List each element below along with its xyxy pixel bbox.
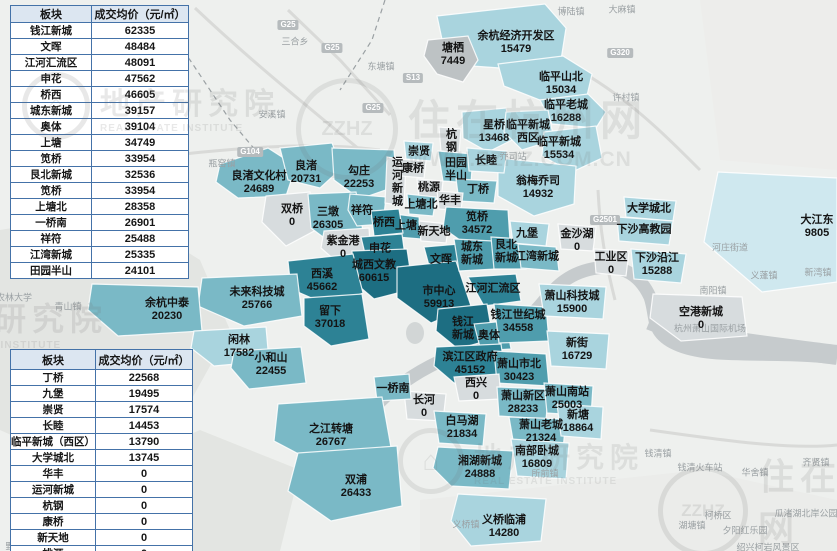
region-price: 15288 <box>635 265 679 278</box>
map-label-zijingang: 紫金港0 <box>327 235 360 261</box>
region-price: 16729 <box>562 350 593 363</box>
map-label-daxuechengbei: 大学城北 <box>627 203 671 216</box>
map-label-gongyequ: 工业区0 <box>595 251 628 277</box>
plate-cell: 笕桥 <box>11 151 92 167</box>
region-name: 钱江新城 <box>452 316 474 342</box>
region-name: 双浦 <box>341 474 372 487</box>
map-label-xixing: 西兴0 <box>465 377 487 403</box>
plate-cell: 江湾新城 <box>11 247 92 263</box>
region-price: 28233 <box>501 403 545 416</box>
region-name: 勾庄 <box>344 165 375 178</box>
region-price: 0 <box>281 216 303 229</box>
map-label-jiubao: 九堡 <box>516 228 538 241</box>
table-row: 运河新城0 <box>11 482 193 498</box>
table-row: 九堡19495 <box>11 386 193 402</box>
map-label-jiangwan-xincheng: 江湾新城 <box>515 251 559 264</box>
region-price: 24689 <box>232 183 287 196</box>
region-name: 余杭经济开发区 <box>478 30 555 43</box>
price-cell: 33954 <box>92 183 189 199</box>
region-name: 申花 <box>369 243 391 256</box>
price-table-upper: 板块 成交均价（元/㎡） 钱江新城62335文晖48484江河汇流区48091申… <box>10 5 189 279</box>
town-label: 瓶窑镇 <box>208 157 235 170</box>
map-label-xiaoshan-shibei: 萧山市北30423 <box>497 358 541 384</box>
region-name: 萧山市北 <box>497 358 541 371</box>
region-name: 长睦 <box>475 155 497 168</box>
map-label-qianjiang-xincheng: 钱江新城 <box>452 316 474 342</box>
map-label-tianyuan-banshan: 田园半山 <box>445 157 467 183</box>
map-label-changmu: 长睦 <box>475 155 497 168</box>
town-label: 乔司站 <box>499 150 526 163</box>
region-price: 15534 <box>537 149 581 162</box>
region-name: 小和山 <box>255 352 288 365</box>
table-row: 上塘34749 <box>11 135 189 151</box>
map-label-nanbu-wocheng: 南部卧城16809 <box>515 445 559 471</box>
plate-cell: 城东新城 <box>11 103 92 119</box>
region-name: 工业区 <box>595 251 628 264</box>
plate-cell: 桥西 <box>11 87 92 103</box>
map-label-tangqi: 塘栖7449 <box>441 42 465 68</box>
town-label: 青山镇 <box>54 300 81 313</box>
region-name: 白马湖 <box>446 415 479 428</box>
price-cell: 13745 <box>96 450 193 466</box>
col-header-price: 成交均价（元/㎡） <box>92 6 189 23</box>
map-label-chongxian: 崇贤 <box>408 146 430 159</box>
map-label-linping-xincheng: 临平新城15534 <box>537 136 581 162</box>
map-label-linping-shanbei: 临平山北15034 <box>539 71 583 97</box>
region-name: 上塘 <box>395 220 417 233</box>
region-name: 下沙高教园 <box>617 224 672 237</box>
region-name: 城西文教 <box>352 259 396 272</box>
plate-cell: 丁桥 <box>11 370 96 386</box>
price-cell: 0 <box>96 530 193 546</box>
map-label-yuhang-zhongtai: 余杭中泰20230 <box>145 297 189 323</box>
region-price: 45152 <box>443 364 498 377</box>
plate-cell: 上塘 <box>11 135 92 151</box>
town-label: 钱清镇 <box>644 447 671 460</box>
map-label-shangtangbei: 上塘北 <box>405 199 438 212</box>
region-price: 0 <box>465 390 487 403</box>
region-name: 临平老城 <box>544 99 588 112</box>
plate-cell: 祥符 <box>11 231 92 247</box>
region-price: 0 <box>679 319 723 332</box>
map-label-baimahu: 白马湖21834 <box>446 415 479 441</box>
region-name: 西溪 <box>307 268 338 281</box>
table-row: 康桥0 <box>11 514 193 530</box>
region-name: 上塘北 <box>405 199 438 212</box>
region-name: 桃源 <box>418 182 440 195</box>
town-label: 瓜渚湖北岸公园 <box>774 507 837 520</box>
map-label-genbei-xincheng: 艮北新城 <box>495 239 517 265</box>
map-label-qiaoxi: 桥西 <box>373 217 395 230</box>
town-label: 东塘镇 <box>367 60 394 73</box>
plate-cell: 笕桥 <box>11 183 92 199</box>
region-name: 华丰 <box>439 195 461 208</box>
town-label: 南阳镇 <box>699 284 726 297</box>
town-label: 钱清火车站 <box>677 461 722 474</box>
map-label-konggang-xincheng: 空港新城0 <box>679 306 723 332</box>
region-name: 新天地 <box>418 226 451 239</box>
price-cell: 25488 <box>92 231 189 247</box>
region-price: 14280 <box>482 527 526 540</box>
price-cell: 14453 <box>96 418 193 434</box>
region-name: 祥符 <box>351 205 373 218</box>
region-name: 义桥临浦 <box>482 514 526 527</box>
map-label-weilai-kejicheng: 未来科技城25766 <box>230 286 285 312</box>
price-cell: 0 <box>96 482 193 498</box>
price-cell: 39104 <box>92 119 189 135</box>
price-cell: 39157 <box>92 103 189 119</box>
table-row: 上塘北28358 <box>11 199 189 215</box>
region-price: 16288 <box>544 112 588 125</box>
region-price: 30423 <box>497 371 541 384</box>
region-name: 桥西 <box>373 217 395 230</box>
region-price: 18864 <box>563 422 594 435</box>
town-label: 博陆镇 <box>557 5 584 18</box>
region-name: 金沙湖 <box>561 228 594 241</box>
town-label: 夕阳红乐园 <box>722 524 767 537</box>
map-label-kangqiao: 康桥 <box>402 163 424 176</box>
price-cell: 26901 <box>92 215 189 231</box>
town-label: 河庄街道 <box>712 241 748 254</box>
map-label-liuxia: 留下37018 <box>315 305 346 331</box>
map-label-shuangpu: 双浦26433 <box>341 474 372 500</box>
map-label-jinshahu: 金沙湖0 <box>561 228 594 254</box>
region-price: 34558 <box>491 322 546 335</box>
plate-cell: 田园半山 <box>11 263 92 279</box>
table-row: 临平新城（西区）13790 <box>11 434 193 450</box>
road-badge: S13 <box>403 73 423 83</box>
road-badge: G104 <box>237 147 263 157</box>
plate-cell: 奥体 <box>11 119 92 135</box>
region-price: 15900 <box>545 303 600 316</box>
map-label-liangzhu: 良渚20731 <box>291 160 322 186</box>
price-cell: 33954 <box>92 151 189 167</box>
map-label-xiaoshan-kejicheng: 萧山科技城15900 <box>545 290 600 316</box>
region-name: 余杭中泰 <box>145 297 189 310</box>
map-label-yuhang-kaifaqu: 余杭经济开发区15479 <box>478 30 555 56</box>
region-name: 留下 <box>315 305 346 318</box>
map-label-gouzhuang: 勾庄22253 <box>344 165 375 191</box>
table-row: 笕桥33954 <box>11 151 189 167</box>
region-name: 三墩 <box>313 206 344 219</box>
table-row: 文晖48484 <box>11 39 189 55</box>
town-label: 三合乡 <box>281 35 308 48</box>
plate-cell: 江河汇流区 <box>11 55 92 71</box>
table-row: 江河汇流区48091 <box>11 55 189 71</box>
table-row: 新天地0 <box>11 530 193 546</box>
plate-cell: 一桥南 <box>11 215 92 231</box>
table-row: 田园半山24101 <box>11 263 189 279</box>
plate-cell: 桃源 <box>11 546 96 551</box>
map-label-chengxi-wenjiao: 城西文教60615 <box>352 259 396 285</box>
table-row: 奥体39104 <box>11 119 189 135</box>
map-label-jianqiao: 笕桥34572 <box>462 211 493 237</box>
region-name: 城东新城 <box>461 241 483 267</box>
town-label: 安溪镇 <box>258 108 285 121</box>
plate-cell: 杭钢 <box>11 498 96 514</box>
table-row: 一桥南26901 <box>11 215 189 231</box>
price-cell: 0 <box>96 466 193 482</box>
region-price: 21324 <box>519 432 563 445</box>
plate-cell: 华丰 <box>11 466 96 482</box>
price-cell: 46605 <box>92 87 189 103</box>
region-price: 0 <box>595 264 628 277</box>
plate-cell: 申花 <box>11 71 92 87</box>
region-price: 7449 <box>441 55 465 68</box>
region-name: 闲林 <box>224 334 255 347</box>
price-cell: 19495 <box>96 386 193 402</box>
table-row: 江湾新城25335 <box>11 247 189 263</box>
region-price: 26305 <box>313 219 344 232</box>
region-name: 萧山科技城 <box>545 290 600 303</box>
map-label-wengmei-qiaosi: 翁梅乔司14932 <box>516 175 560 201</box>
region-price: 16809 <box>515 458 559 471</box>
map-label-changhe: 长河0 <box>413 394 435 420</box>
plain-northeast <box>700 0 837 170</box>
region-name: 西兴 <box>465 377 487 390</box>
region-name: 康桥 <box>402 163 424 176</box>
map-label-yiqiao-linpu: 义桥临浦14280 <box>482 514 526 540</box>
region-price: 22253 <box>344 178 375 191</box>
plate-cell: 钱江新城 <box>11 23 92 39</box>
map-label-xixi: 西溪45662 <box>307 268 338 294</box>
town-label: 农林大学 <box>0 291 32 304</box>
table-row: 笕桥33954 <box>11 183 189 199</box>
plate-cell: 长睦 <box>11 418 96 434</box>
town-label: 绍兴柯岩风景区 <box>736 541 799 551</box>
town-label: 柯桥区 <box>704 509 731 522</box>
price-cell: 34749 <box>92 135 189 151</box>
region-name: 之江转塘 <box>309 423 353 436</box>
table-row: 城东新城39157 <box>11 103 189 119</box>
town-label: 大麻镇 <box>608 3 635 16</box>
region-price: 20230 <box>145 310 189 323</box>
price-cell: 48091 <box>92 55 189 71</box>
map-label-xintiandi: 新天地 <box>418 226 451 239</box>
table-row: 长睦14453 <box>11 418 193 434</box>
table-header-row: 板块 成交均价（元/㎡） <box>11 6 189 23</box>
town-label: 义蓬镇 <box>750 269 777 282</box>
town-label: 新湾镇 <box>804 266 831 279</box>
map-label-dingqiao: 丁桥 <box>467 184 489 197</box>
road-badge: G25 <box>362 103 383 113</box>
region-name: 笕桥 <box>462 211 493 224</box>
region-price: 34572 <box>462 224 493 237</box>
region-name: 临平山北 <box>539 71 583 84</box>
region-name: 丁桥 <box>467 184 489 197</box>
map-label-wenhui: 文晖 <box>430 254 452 267</box>
map-label-sandun: 三墩26305 <box>313 206 344 232</box>
map-label-xiangfu: 祥符 <box>351 205 373 218</box>
plate-cell: 临平新城（西区） <box>11 434 96 450</box>
price-cell: 25335 <box>92 247 189 263</box>
town-label: 义桥镇 <box>452 518 479 531</box>
town-label: 齐贤镇 <box>802 456 829 469</box>
plate-cell: 崇贤 <box>11 402 96 418</box>
map-label-xiaoshan-laocheng: 萧山老城21324 <box>519 419 563 445</box>
map-label-huafeng: 华丰 <box>439 195 461 208</box>
map-label-chengdong-xincheng: 城东新城 <box>461 241 483 267</box>
region-name: 市中心 <box>423 285 456 298</box>
region-name: 一桥南 <box>377 383 410 396</box>
plate-cell: 文晖 <box>11 39 92 55</box>
map-label-xingqiao: 星桥13468 <box>479 119 510 145</box>
region-name: 星桥 <box>479 119 510 132</box>
table-header-row: 板块 成交均价（元/㎡） <box>11 350 193 370</box>
region-name: 双桥 <box>281 203 303 216</box>
region-name: 钱江世纪城 <box>491 309 546 322</box>
map-label-dajiangdong: 大江东9805 <box>801 214 834 240</box>
map-label-shizhongxin: 市中心59913 <box>423 285 456 311</box>
region-price: 22455 <box>255 365 288 378</box>
region-name: 江河汇流区 <box>466 283 521 296</box>
region-price: 0 <box>561 241 594 254</box>
region-price: 25766 <box>230 299 285 312</box>
region-name: 大学城北 <box>627 203 671 216</box>
region-name: 杭钢 <box>444 128 457 154</box>
region-name: 文晖 <box>430 254 452 267</box>
map-label-xintang: 新塘18864 <box>563 409 594 435</box>
region-name: 运河新城 <box>390 156 403 208</box>
region-price: 21834 <box>446 428 479 441</box>
map-label-xiasha-gaojiaoyuan: 下沙高教园 <box>617 224 672 237</box>
region-price: 26433 <box>341 487 372 500</box>
region-name: 紫金港 <box>327 235 360 248</box>
region-price: 59913 <box>423 298 456 311</box>
table-row: 大学城北13745 <box>11 450 193 466</box>
region-price: 17582 <box>224 347 255 360</box>
table-row: 桥西46605 <box>11 87 189 103</box>
price-cell: 0 <box>96 546 193 551</box>
region-name: 滨江区政府 <box>443 351 498 364</box>
region-price: 60615 <box>352 272 396 285</box>
road-badge: G25 <box>321 43 342 53</box>
town-label: 许村镇 <box>612 91 639 104</box>
region-name: 田园半山 <box>445 157 467 183</box>
region-name: 萧山老城 <box>519 419 563 432</box>
region-name: 江湾新城 <box>515 251 559 264</box>
region-name: 空港新城 <box>679 306 723 319</box>
region-name: 下沙沿江 <box>635 252 679 265</box>
table-row: 祥符25488 <box>11 231 189 247</box>
map-label-xiasha-yanjiang: 下沙沿江15288 <box>635 252 679 278</box>
region-price: 15479 <box>478 43 555 56</box>
map-label-liangzhu-wenhuacun: 良渚文化村24689 <box>232 170 287 196</box>
map-label-taoyuan: 桃源 <box>418 182 440 195</box>
map-label-shenhua: 申花 <box>369 243 391 256</box>
price-table-lower: 板块 成交均价（元/㎡） 丁桥22568九堡19495崇贤17574长睦1445… <box>10 349 193 551</box>
table-row: 钱江新城62335 <box>11 23 189 39</box>
col-header-price: 成交均价（元/㎡） <box>96 350 193 370</box>
plate-cell: 运河新城 <box>11 482 96 498</box>
town-label: 华舍镇 <box>741 466 768 479</box>
region-name: 湘湖新城 <box>458 455 502 468</box>
region-price: 24888 <box>458 468 502 481</box>
table-row: 桃源0 <box>11 546 193 551</box>
region-name: 艮北新城 <box>495 239 517 265</box>
map-label-yiqiaonan: 一桥南 <box>377 383 410 396</box>
map-label-xianlin: 闲林17582 <box>224 334 255 360</box>
road-badge: G320 <box>607 48 633 58</box>
west-lake <box>406 322 424 344</box>
town-label: 湖塘镇 <box>678 519 705 532</box>
col-header-plate: 板块 <box>11 6 92 23</box>
region-name: 未来科技城 <box>230 286 285 299</box>
col-header-plate: 板块 <box>11 350 96 370</box>
region-name: 南部卧城 <box>515 445 559 458</box>
region-price: 26767 <box>309 436 353 449</box>
plate-cell: 新天地 <box>11 530 96 546</box>
region-name: 九堡 <box>516 228 538 241</box>
map-label-jianghe-huiliuqu: 江河汇流区 <box>466 283 521 296</box>
price-cell: 22568 <box>96 370 193 386</box>
region-name: 萧山南站 <box>545 386 589 399</box>
region-price: 9805 <box>801 227 834 240</box>
region-price: 20731 <box>291 173 322 186</box>
table-row: 崇贤17574 <box>11 402 193 418</box>
region-name: 大江东 <box>801 214 834 227</box>
hangzhou-price-map: 板块 成交均价（元/㎡） 钱江新城62335文晖48484江河汇流区48091申… <box>0 0 837 551</box>
region-name: 翁梅乔司 <box>516 175 560 188</box>
region-name: 塘栖 <box>441 42 465 55</box>
table-row: 华丰0 <box>11 466 193 482</box>
map-label-shuangqiao: 双桥0 <box>281 203 303 229</box>
region-name: 良渚 <box>291 160 322 173</box>
plate-cell: 康桥 <box>11 514 96 530</box>
map-label-linping-laocheng: 临平老城16288 <box>544 99 588 125</box>
road-badge: G25 <box>277 20 298 30</box>
region-name: 长河 <box>413 394 435 407</box>
map-label-binjiang-quzhengfu: 滨江区政府45152 <box>443 351 498 377</box>
map-label-yunhe-xincheng: 运河新城 <box>390 156 403 208</box>
table-row: 杭钢0 <box>11 498 193 514</box>
price-cell: 17574 <box>96 402 193 418</box>
region-name: 萧山新区 <box>501 390 545 403</box>
table-row: 艮北新城32536 <box>11 167 189 183</box>
plate-cell: 艮北新城 <box>11 167 92 183</box>
map-label-xiaoshan-xinqu: 萧山新区28233 <box>501 390 545 416</box>
map-label-xianghu-xincheng: 湘湖新城24888 <box>458 455 502 481</box>
region-price: 13468 <box>479 132 510 145</box>
plate-cell: 上塘北 <box>11 199 92 215</box>
region-name: 良渚文化村 <box>232 170 287 183</box>
region-price: 14932 <box>516 188 560 201</box>
table-row: 申花47562 <box>11 71 189 87</box>
region-name: 新街 <box>562 337 593 350</box>
region-price: 45662 <box>307 281 338 294</box>
price-cell: 48484 <box>92 39 189 55</box>
price-cell: 0 <box>96 514 193 530</box>
price-cell: 28358 <box>92 199 189 215</box>
map-label-hanggang: 杭钢 <box>444 128 457 154</box>
price-cell: 32536 <box>92 167 189 183</box>
price-cell: 47562 <box>92 71 189 87</box>
region-name: 新塘 <box>563 409 594 422</box>
region-price: 37018 <box>315 318 346 331</box>
road-badge: G2501 <box>590 215 620 225</box>
plate-cell: 大学城北 <box>11 450 96 466</box>
map-label-zhijiang-zhuantang: 之江转塘26767 <box>309 423 353 449</box>
price-cell: 24101 <box>92 263 189 279</box>
region-name: 崇贤 <box>408 146 430 159</box>
map-label-shangtang: 上塘 <box>395 220 417 233</box>
price-cell: 62335 <box>92 23 189 39</box>
region-name: 临平新城 <box>537 136 581 149</box>
price-cell: 13790 <box>96 434 193 450</box>
plate-cell: 九堡 <box>11 386 96 402</box>
map-label-xinjie: 新街16729 <box>562 337 593 363</box>
map-label-xiaoheshan: 小和山22455 <box>255 352 288 378</box>
